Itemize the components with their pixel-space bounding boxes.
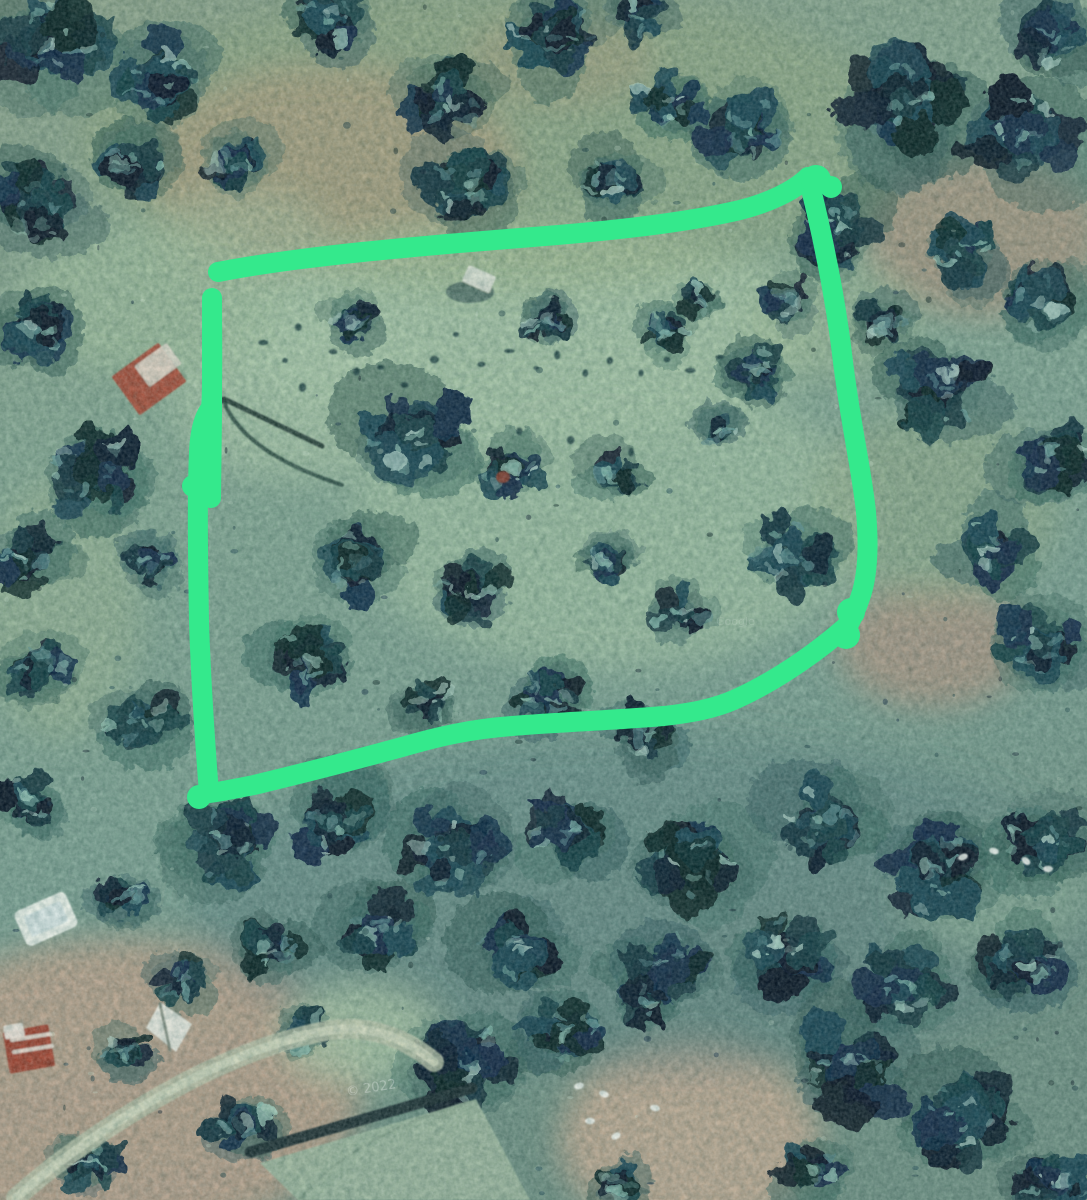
parcel-outline-knob	[832, 621, 860, 649]
parcel-outline-knob	[182, 475, 204, 497]
parcel-outline-knob	[187, 785, 211, 809]
satellite-image: © 2022 Google	[0, 0, 1087, 1200]
parcel-outline-knob	[837, 598, 865, 626]
noise-light-overlay	[0, 0, 1087, 1200]
parcel-outline-thick	[211, 298, 212, 498]
parcel-outline-knob	[820, 176, 842, 198]
aerial-photo: © 2022 Google	[0, 0, 1087, 1200]
map-watermark-provider: Google	[716, 615, 755, 628]
